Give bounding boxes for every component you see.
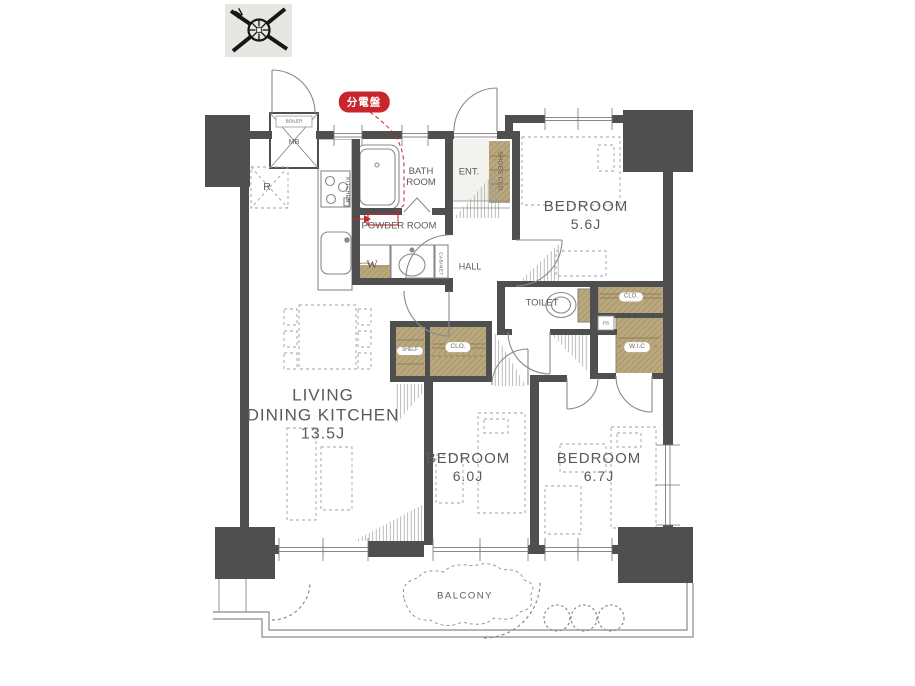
bedroom-a-label: BEDROOM 5.6J bbox=[544, 198, 629, 232]
ldk-label: LIVING DINING KITCHEN 13.5J bbox=[247, 386, 400, 445]
closet-hall-label: CLO. bbox=[445, 342, 470, 352]
planter bbox=[571, 605, 597, 631]
bath-line1: BATH bbox=[406, 166, 436, 177]
bath-line2: ROOM bbox=[406, 177, 436, 188]
shelf-label: SHELF bbox=[397, 347, 423, 355]
shoes-closet-label: SHOES CLO. bbox=[495, 151, 502, 193]
cabinet-label: CABINET bbox=[438, 252, 443, 275]
distribution-board-badge: 分電盤 bbox=[339, 92, 390, 113]
boiler-label: BOILER bbox=[286, 118, 303, 123]
ldk-size: 13.5J bbox=[247, 426, 400, 445]
bedroom-b-name: BEDROOM bbox=[426, 450, 511, 468]
powder-room-label: POWDER ROOM bbox=[362, 220, 437, 231]
wic-door bbox=[616, 376, 652, 412]
toilet-label: TOILET bbox=[525, 297, 558, 308]
bedroom-b-size: 6.0J bbox=[426, 468, 511, 485]
bathtub bbox=[356, 145, 399, 209]
bedroom-a-name: BEDROOM bbox=[544, 198, 629, 216]
closet-a-label: CLO. bbox=[619, 292, 643, 301]
bath-folding-door bbox=[404, 198, 430, 212]
kitchen-counter bbox=[318, 139, 352, 290]
entrance-label: ENT. bbox=[459, 166, 480, 177]
planter bbox=[598, 605, 624, 631]
bedroom-c-size: 6.7J bbox=[557, 468, 642, 485]
floor-plan: N 分電盤 BOILER MB R KITCHEN BATH ROOM POWD… bbox=[0, 0, 915, 686]
kitchen-label: KITCHEN bbox=[343, 177, 349, 202]
balcony-label: BALCONY bbox=[437, 590, 493, 601]
bedroom-c-name: BEDROOM bbox=[557, 450, 642, 468]
entrance-door bbox=[454, 88, 497, 131]
refrigerator-label: R bbox=[263, 181, 271, 193]
meter-box-label: MB bbox=[289, 139, 300, 147]
pipe-space-label: PS bbox=[603, 320, 609, 325]
meter-box-door bbox=[272, 70, 315, 113]
wic-label: W.I.C bbox=[624, 342, 650, 352]
bath-room-label: BATH ROOM bbox=[406, 166, 436, 188]
planter bbox=[544, 605, 570, 631]
bedroom-c-door bbox=[567, 378, 598, 409]
ldk-line1: LIVING bbox=[247, 386, 400, 406]
dining-table bbox=[299, 305, 356, 369]
balcony-partition-arc bbox=[272, 582, 310, 620]
hall-label: HALL bbox=[459, 262, 482, 273]
washer-label: W bbox=[366, 257, 377, 271]
bedroom-a-size: 5.6J bbox=[544, 216, 629, 233]
ldk-line2: DINING KITCHEN bbox=[247, 406, 400, 426]
bedroom-b-label: BEDROOM 6.0J bbox=[426, 450, 511, 484]
bedroom-c-label: BEDROOM 6.7J bbox=[557, 450, 642, 484]
